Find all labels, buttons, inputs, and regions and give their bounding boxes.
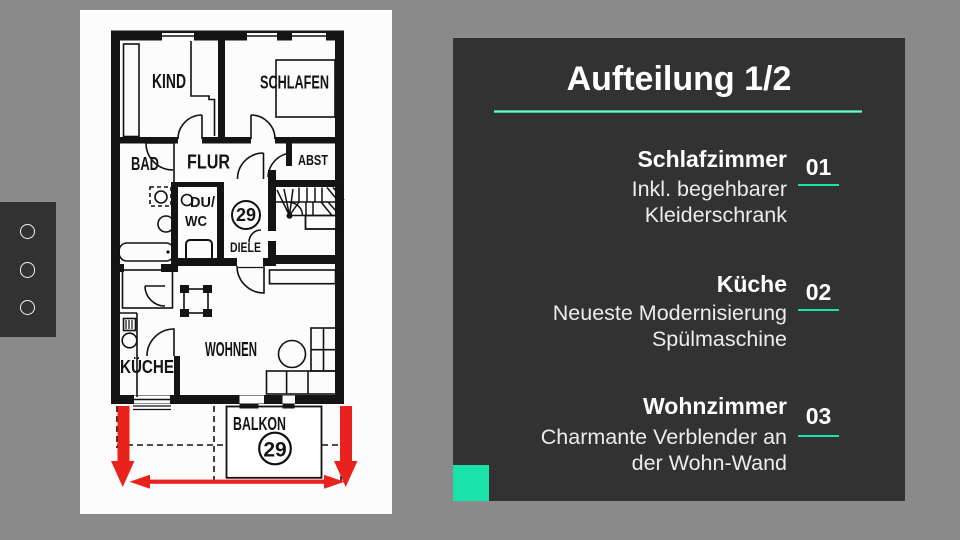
svg-text:SCHLAFEN: SCHLAFEN	[260, 73, 329, 93]
svg-text:WC: WC	[185, 213, 207, 230]
svg-text:KÜCHE: KÜCHE	[120, 357, 174, 377]
svg-text:BAD: BAD	[131, 154, 159, 174]
svg-text:29: 29	[236, 205, 256, 225]
svg-text:DU/: DU/	[190, 194, 216, 211]
svg-text:DIELE: DIELE	[230, 239, 261, 255]
svg-text:ABST: ABST	[298, 152, 328, 169]
svg-text:FLUR: FLUR	[187, 152, 230, 174]
svg-text:29: 29	[263, 439, 286, 462]
svg-text:BALKON: BALKON	[233, 414, 286, 434]
svg-text:WOHNEN: WOHNEN	[205, 339, 257, 361]
svg-text:KIND: KIND	[152, 71, 186, 93]
